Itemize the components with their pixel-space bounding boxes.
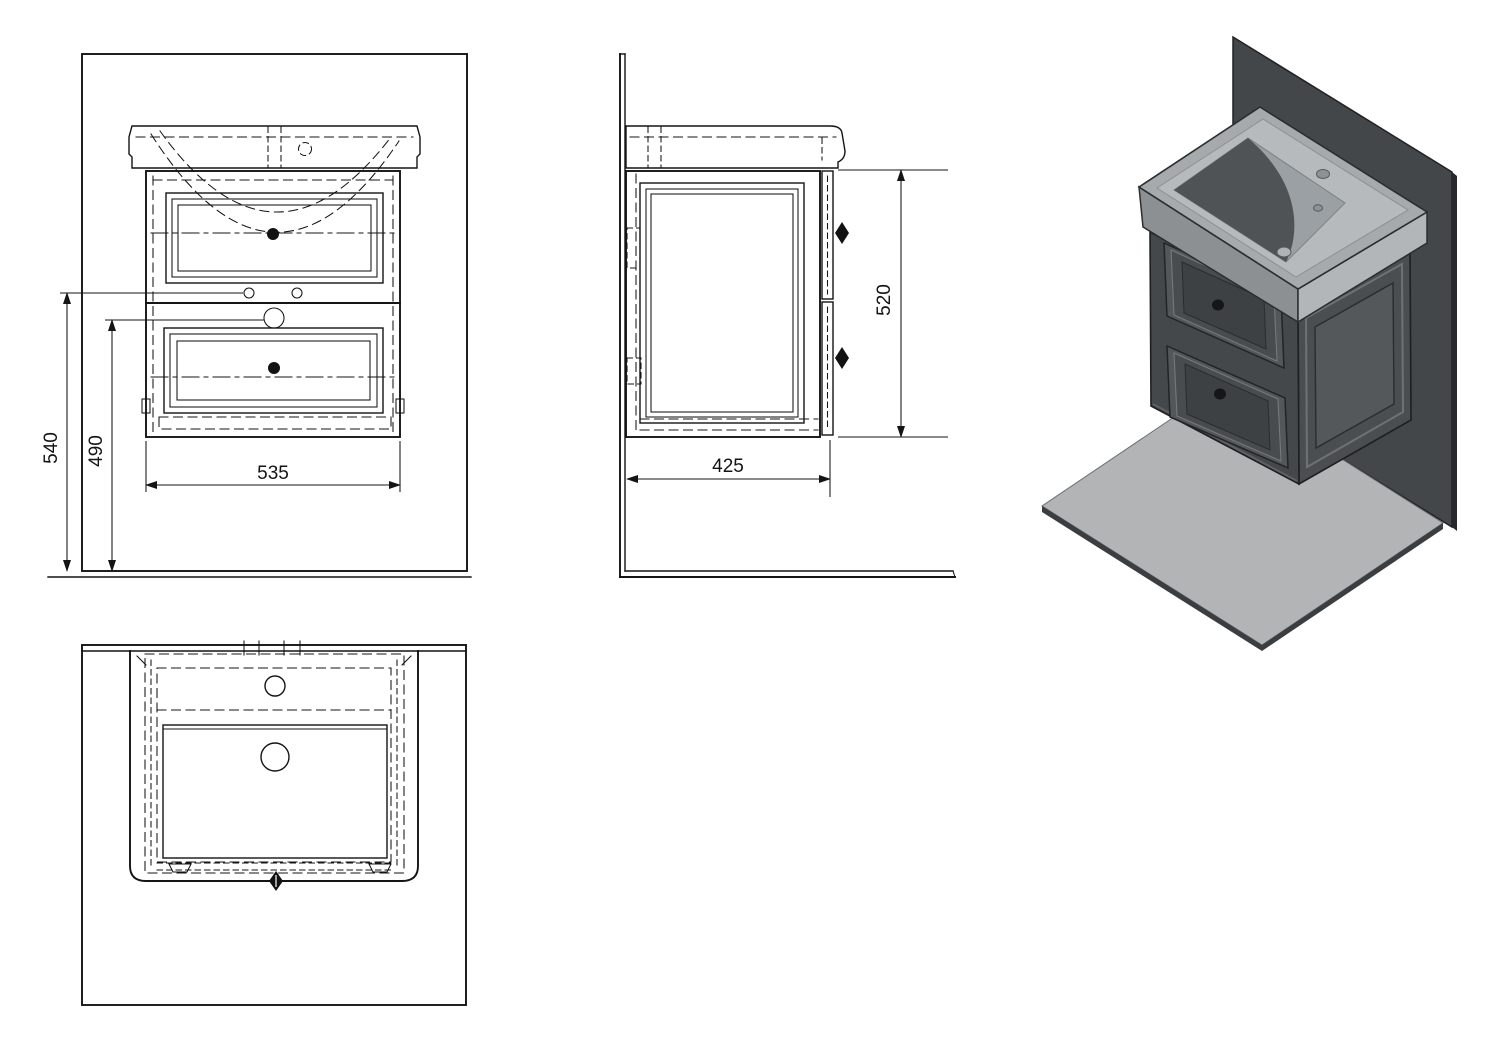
plinth-hidden bbox=[159, 417, 391, 429]
top-knob-side bbox=[835, 222, 849, 244]
dim-425-label: 425 bbox=[712, 456, 744, 477]
iso-faucet-hole bbox=[1317, 170, 1330, 179]
drain-hole-plan bbox=[261, 743, 289, 771]
wall-bracket-lower bbox=[627, 358, 641, 384]
iso-bottom-knob bbox=[1214, 389, 1226, 400]
wall-panel-plan bbox=[82, 645, 466, 1005]
cabinet-front bbox=[142, 171, 404, 437]
cabinet-hidden-plan bbox=[145, 654, 404, 873]
dimension-depth-425: 425 bbox=[627, 440, 830, 497]
corner-bracket-left bbox=[169, 864, 191, 872]
dim-490-label: 490 bbox=[86, 435, 107, 467]
side-view: 520 425 bbox=[620, 54, 955, 577]
cabinet-side-outline bbox=[626, 171, 820, 437]
dim-520-label: 520 bbox=[874, 284, 895, 316]
iso-drain-hole bbox=[1277, 247, 1291, 257]
bowl-outline-hidden bbox=[151, 134, 399, 232]
plan-view bbox=[82, 641, 466, 1005]
isometric-view bbox=[1042, 37, 1457, 651]
top-drawer-knob bbox=[267, 228, 279, 240]
iso-top-knob bbox=[1212, 300, 1224, 311]
bottom-drawer bbox=[151, 328, 395, 413]
mounting-hole-right bbox=[292, 288, 302, 298]
faucet-hole bbox=[299, 143, 312, 156]
corner-bracket-right bbox=[369, 864, 391, 872]
technical-drawing-sheet: 535 540 490 bbox=[0, 0, 1500, 1058]
cabinet-side bbox=[626, 171, 849, 437]
washbasin-front bbox=[129, 126, 420, 232]
dim-540-label: 540 bbox=[41, 432, 62, 464]
drawer-box-plan bbox=[163, 725, 387, 858]
bottom-knob-side bbox=[835, 347, 849, 369]
wall-bracket-upper bbox=[627, 228, 640, 268]
cabinet-outline bbox=[146, 171, 400, 437]
iso-overflow-hole bbox=[1314, 205, 1323, 211]
drain-hole bbox=[264, 308, 284, 328]
faucet-hole-plan bbox=[265, 676, 285, 696]
bottom-drawer-knob bbox=[268, 362, 280, 374]
washbasin-plan bbox=[130, 651, 418, 881]
dimension-height-490: 490 bbox=[86, 320, 264, 571]
dimension-height-540: 540 bbox=[41, 293, 243, 571]
washbasin-side bbox=[626, 126, 845, 168]
top-drawer bbox=[151, 193, 395, 283]
mounting-hole-left bbox=[244, 288, 254, 298]
wall-edge bbox=[1452, 172, 1457, 531]
dim-535-label: 535 bbox=[257, 463, 289, 484]
dimension-width-535: 535 bbox=[146, 441, 400, 492]
wall-panel-outline bbox=[82, 54, 467, 571]
front-view: 535 540 490 bbox=[41, 54, 471, 577]
dimension-height-520: 520 bbox=[838, 170, 948, 437]
